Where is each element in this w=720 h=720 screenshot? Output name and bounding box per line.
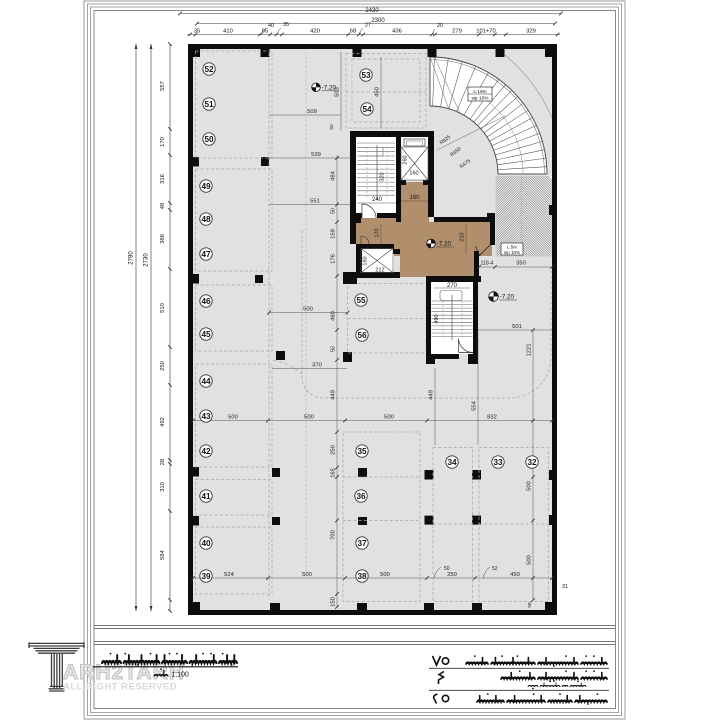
- svg-text:500: 500: [228, 415, 238, 421]
- svg-text:260: 260: [403, 155, 409, 164]
- svg-text:50: 50: [444, 566, 450, 572]
- svg-text:35: 35: [194, 29, 200, 35]
- svg-text:52: 52: [492, 566, 498, 572]
- svg-text:450: 450: [375, 87, 381, 97]
- svg-text:832: 832: [487, 415, 497, 421]
- svg-text:50: 50: [329, 124, 335, 130]
- svg-text:41: 41: [201, 492, 211, 501]
- svg-text:539: 539: [311, 152, 321, 158]
- svg-text:28: 28: [160, 459, 166, 465]
- svg-text:240: 240: [372, 197, 383, 203]
- svg-text:160: 160: [363, 256, 369, 265]
- svg-text:46: 46: [201, 297, 211, 306]
- svg-text:510: 510: [160, 303, 166, 313]
- svg-text:45: 45: [201, 330, 211, 339]
- svg-text:500: 500: [304, 415, 314, 421]
- svg-text:500: 500: [380, 572, 390, 578]
- svg-text:210: 210: [460, 232, 466, 241]
- svg-text:-7.20: -7.20: [437, 241, 452, 248]
- svg-text:554: 554: [472, 400, 478, 410]
- svg-text:165: 165: [331, 468, 337, 478]
- svg-text:500: 500: [527, 481, 533, 491]
- svg-text:31: 31: [562, 584, 568, 590]
- svg-text:490: 490: [434, 314, 440, 323]
- svg-text:350: 350: [516, 261, 526, 267]
- svg-text:436: 436: [392, 29, 402, 35]
- svg-text:51: 51: [204, 100, 214, 109]
- svg-text:524: 524: [224, 572, 234, 578]
- svg-text:250: 250: [331, 445, 337, 455]
- svg-text:159: 159: [331, 229, 337, 239]
- svg-text:170: 170: [160, 137, 166, 147]
- svg-text:37: 37: [357, 539, 367, 548]
- svg-text:370: 370: [312, 363, 322, 369]
- svg-text:39: 39: [201, 572, 211, 581]
- svg-text:250: 250: [447, 572, 457, 578]
- svg-text:40: 40: [268, 23, 274, 29]
- svg-text:500: 500: [527, 555, 533, 565]
- svg-text:43: 43: [201, 412, 211, 421]
- svg-text:584: 584: [160, 549, 166, 559]
- svg-text:27: 27: [365, 23, 371, 29]
- svg-text:68: 68: [350, 29, 356, 35]
- svg-text:1221: 1221: [527, 344, 533, 357]
- svg-text:2300: 2300: [371, 18, 385, 24]
- svg-text:320: 320: [380, 172, 386, 181]
- svg-text:410: 410: [223, 29, 233, 35]
- svg-text:52: 52: [204, 65, 214, 74]
- svg-text:386: 386: [160, 234, 166, 244]
- svg-text:160: 160: [409, 195, 420, 201]
- svg-text:48: 48: [201, 215, 211, 224]
- svg-text:42: 42: [201, 447, 211, 456]
- svg-text:50: 50: [204, 135, 214, 144]
- svg-text:65: 65: [262, 29, 268, 35]
- svg-text:101+70: 101+70: [476, 29, 496, 35]
- svg-text:35: 35: [283, 22, 289, 28]
- svg-text:sip 10%: sip 10%: [504, 250, 520, 255]
- svg-text:-7.20: -7.20: [500, 294, 515, 301]
- svg-text:270: 270: [447, 283, 458, 289]
- svg-text:557: 557: [160, 81, 166, 91]
- svg-text:118-4: 118-4: [481, 261, 494, 267]
- svg-text:501: 501: [512, 324, 522, 330]
- svg-text:176: 176: [331, 254, 337, 264]
- svg-text:50: 50: [331, 346, 337, 352]
- svg-text:47: 47: [201, 250, 211, 259]
- svg-text:279: 279: [452, 29, 462, 35]
- svg-text:48: 48: [160, 203, 166, 209]
- svg-text:450: 450: [510, 572, 520, 578]
- svg-text:55: 55: [356, 296, 366, 305]
- svg-text:500: 500: [302, 572, 312, 578]
- svg-text:329: 329: [526, 29, 536, 35]
- svg-text:50: 50: [331, 208, 337, 214]
- svg-text:53: 53: [361, 71, 371, 80]
- svg-text:33: 33: [493, 458, 503, 467]
- svg-text:2430: 2430: [365, 8, 379, 14]
- svg-text:503: 503: [335, 87, 341, 97]
- svg-text:160: 160: [409, 171, 418, 177]
- svg-text:sip 10%: sip 10%: [471, 96, 489, 102]
- svg-text:54: 54: [362, 105, 372, 114]
- svg-text:700: 700: [331, 530, 337, 540]
- svg-text:150: 150: [331, 597, 337, 607]
- svg-text:420: 420: [310, 29, 320, 35]
- svg-text:2730: 2730: [144, 253, 150, 267]
- svg-text:449: 449: [331, 390, 337, 400]
- svg-text:34: 34: [447, 458, 457, 467]
- svg-text:449: 449: [429, 390, 435, 400]
- svg-text:316: 316: [160, 174, 166, 184]
- svg-text:32: 32: [527, 458, 537, 467]
- svg-text:212: 212: [375, 268, 384, 274]
- svg-text:36: 36: [356, 492, 366, 501]
- svg-text:1;100: 1;100: [171, 672, 189, 679]
- svg-text:170: 170: [375, 228, 381, 237]
- svg-text:500: 500: [384, 415, 394, 421]
- svg-text:2780: 2780: [129, 251, 135, 265]
- svg-text:500: 500: [303, 307, 313, 313]
- svg-text:20: 20: [437, 23, 443, 29]
- svg-text:484: 484: [331, 170, 337, 180]
- svg-text:56: 56: [357, 331, 367, 340]
- svg-text:492: 492: [160, 417, 166, 427]
- svg-text:40: 40: [201, 539, 211, 548]
- svg-text:551: 551: [310, 199, 320, 205]
- svg-text:ALL RIGHT RESERVED: ALL RIGHT RESERVED: [63, 682, 177, 693]
- svg-text:509: 509: [307, 109, 317, 115]
- svg-text:250: 250: [160, 361, 166, 371]
- svg-text:35: 35: [357, 447, 367, 456]
- svg-text:49: 49: [201, 182, 211, 191]
- svg-text:58: 58: [527, 602, 533, 608]
- svg-text:44: 44: [201, 377, 211, 386]
- svg-text:310: 310: [160, 482, 166, 492]
- svg-text:L 5m: L 5m: [507, 244, 517, 249]
- svg-text:38: 38: [357, 572, 367, 581]
